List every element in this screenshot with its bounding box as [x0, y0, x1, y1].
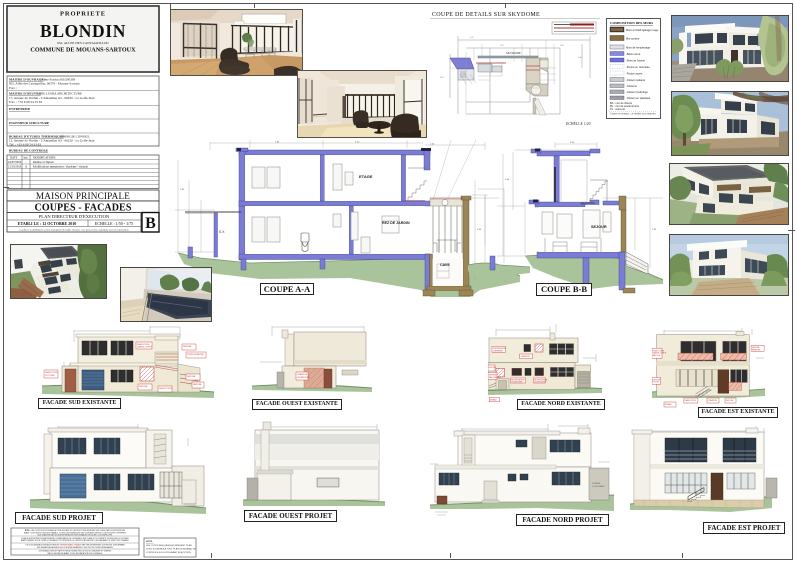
svg-text:ETAGE: ETAGE: [359, 174, 373, 179]
svg-text:-Cloison hydrofuge: -Cloison hydrofuge: [626, 90, 648, 94]
svg-text:DEPOSE: DEPOSE: [488, 367, 496, 369]
svg-text:PORTE FENETRE: PORTE FENETRE: [187, 354, 204, 356]
svg-text:DEMOLITION: DEMOLITION: [45, 372, 58, 374]
svg-text:DEMOLITION: DEMOLITION: [685, 400, 697, 402]
svg-text:B: B: [145, 215, 156, 232]
svg-text:-Poutre noyée: -Poutre noyée: [626, 72, 643, 76]
svg-text:-Poutre en retombée: -Poutre en retombée: [626, 65, 650, 69]
svg-text:CHEMINEE: CHEMINEE: [493, 350, 503, 352]
svg-text:DEPOSE: DEPOSE: [193, 384, 202, 386]
svg-text:MACONNERIE: MACONNERIE: [489, 376, 502, 379]
svg-text:PORTE: PORTE: [653, 382, 660, 384]
svg-text:CAVE: CAVE: [440, 263, 450, 267]
svg-text:MEZZANINE: MEZZANINE: [581, 202, 595, 205]
svg-text:Cotes et niveaux : à vérifier: Cotes et niveaux : à vérifier sur chanti…: [610, 112, 656, 116]
svg-text:BUREAU DE CONTROLE: BUREAU DE CONTROLE: [9, 149, 49, 153]
svg-text:BALCON: BALCON: [653, 354, 661, 357]
svg-text:ENTREPRISE: ENTREPRISE: [9, 107, 31, 111]
svg-text:-Cloison isolante: -Cloison isolante: [626, 78, 646, 82]
svg-text:GARDE CORPS: GARDE CORPS: [137, 346, 152, 349]
svg-text:DEMOLITION: DEMOLITION: [159, 388, 172, 390]
svg-text:S.X: S.X: [219, 230, 225, 234]
svg-text:CLOTURE: CLOTURE: [45, 375, 55, 377]
svg-text:3.40: 3.40: [570, 142, 575, 144]
svg-text:ETABLI LE : 12 OCTOBRE 2010: ETABLI LE : 12 OCTOBRE 2010: [18, 221, 76, 226]
svg-text:CONTROLE SOLLICITE AVANT EXECU: CONTROLE SOLLICITE AVANT EXECUTION: [146, 551, 191, 554]
svg-text:0.30: 0.30: [578, 57, 582, 59]
svg-text:Port. : +33 6 09 54 33 63: Port. : +33 6 09 54 33 63: [9, 100, 42, 104]
svg-text:CREATION: CREATION: [521, 355, 531, 358]
svg-text:-Cloisons: -Cloisons: [626, 84, 638, 88]
svg-text:Murs de remplissage: Murs de remplissage: [626, 46, 651, 50]
svg-text:DEPOSE: DEPOSE: [187, 376, 196, 378]
svg-text:16/07/2010: 16/07/2010: [8, 160, 22, 164]
svg-text:2.64: 2.64: [275, 142, 280, 144]
svg-text::: :: [29, 107, 30, 111]
svg-text:PLAN DIRECTEUR D'EXECUTION: PLAN DIRECTEUR D'EXECUTION: [39, 214, 110, 219]
svg-text:NIVEAU: NIVEAU: [665, 403, 672, 406]
svg-text:REZ DE JARDIN: REZ DE JARDIN: [382, 221, 410, 225]
svg-text:Modifications menuiseries / sk: Modifications menuiseries / skydome / vé…: [33, 165, 89, 169]
svg-text:1.40: 1.40: [430, 144, 435, 146]
svg-text:ECHELLE 1/20: ECHELLE 1/20: [566, 122, 591, 126]
svg-text:LES COTES INDIQUEES AU PRESENT: LES COTES INDIQUEES AU PRESENT PLAN: [146, 544, 192, 547]
svg-text:Port. :: Port. :: [9, 86, 17, 90]
svg-text:12/10/2010: 12/10/2010: [8, 165, 22, 169]
svg-text:AVANT REMISE DE SON OFFRE ET S: AVANT REMISE DE SON OFFRE ET SIGNALER TO…: [21, 539, 130, 542]
svg-text:Mur porteur: Mur porteur: [626, 37, 640, 41]
svg-text:Ce plan et sa distribution res: Ce plan et sa distribution restent la pr…: [19, 229, 129, 232]
svg-text::: :: [45, 149, 46, 153]
svg-text:BLONDIN: BLONDIN: [40, 21, 126, 41]
svg-text:SEJOUR: SEJOUR: [591, 225, 607, 229]
svg-text:0.40: 0.40: [560, 45, 564, 47]
svg-text:-: -: [26, 160, 27, 164]
svg-text:DATE: DATE: [10, 155, 18, 159]
svg-text:OUVERTURE: OUVERTURE: [534, 382, 546, 384]
svg-text:-Béton armé: -Béton armé: [626, 52, 641, 56]
svg-text:0.15: 0.15: [470, 37, 474, 39]
svg-text:PORTAIL: PORTAIL: [592, 482, 601, 485]
svg-text:2.45: 2.45: [652, 229, 657, 231]
svg-text:CREATION: CREATION: [708, 399, 718, 402]
svg-text:Remise à l'Option: Remise à l'Option: [33, 160, 54, 164]
svg-text:2.60: 2.60: [180, 189, 185, 191]
svg-text:COMPOSITION DES MURS: COMPOSITION DES MURS: [610, 21, 653, 25]
svg-text:MODIFICATIONS: MODIFICATIONS: [33, 155, 56, 159]
svg-text:SONT SOUMISES A TOUT PLAN DE B: SONT SOUMISES A TOUT PLAN DE BUREAU DE: [146, 547, 196, 550]
svg-text:NIVEAU: NIVEAU: [490, 398, 497, 401]
svg-text:MAISON PRINCIPALE: MAISON PRINCIPALE: [36, 191, 130, 201]
svg-text:0.25: 0.25: [440, 77, 444, 79]
svg-text:SKYDOME: SKYDOME: [506, 51, 521, 55]
svg-text:-Murs de l'avenir: -Murs de l'avenir: [626, 59, 645, 63]
svg-text:OUVERTURE: OUVERTURE: [511, 382, 523, 384]
svg-text:-Cloison en plastique: -Cloison en plastique: [626, 96, 651, 100]
svg-text:2.65: 2.65: [505, 179, 510, 181]
svg-text:DEPOSE: DEPOSE: [139, 386, 148, 388]
svg-text:Ind.: Ind.: [24, 155, 29, 159]
svg-text:NOTE :: NOTE :: [146, 541, 154, 543]
svg-text:CREATION: CREATION: [297, 373, 308, 376]
svg-text:SUR CHANTIER PAR LES ENTREPREN: SUR CHANTIER PAR LES ENTREPRENEURS RESPO…: [37, 533, 113, 536]
svg-text:DEPOSE: DEPOSE: [726, 400, 734, 402]
svg-text:PROPRIETE: PROPRIETE: [60, 11, 106, 18]
svg-text:DES DEMARCHES AUPRES DES CONCE: DES DEMARCHES AUPRES DES CONCESSIONNAIRE…: [37, 546, 114, 549]
svg-text:1.35: 1.35: [500, 45, 504, 47]
svg-text:PAR LE GEOMETRE AVANT TOUTE IM: PAR LE GEOMETRE AVANT TOUTE IMPLANTATION…: [48, 552, 104, 555]
svg-text:OUVERTURE: OUVERTURE: [297, 377, 310, 379]
svg-text::: :: [47, 121, 48, 125]
svg-text:Murs à réhab./garage rouge: Murs à réhab./garage rouge: [626, 28, 659, 32]
svg-text:3.10: 3.10: [355, 142, 360, 144]
svg-text:PL : volet ext.: PL : volet ext.: [610, 107, 626, 111]
svg-text:COUPES - FACADES: COUPES - FACADES: [35, 203, 132, 214]
svg-text:COULISSANT: COULISSANT: [592, 485, 606, 488]
svg-text:ECHELLE : 1/50 - 1/75: ECHELLE : 1/50 - 1/75: [95, 221, 133, 226]
svg-text:INGENIEUR STRUCTURE: INGENIEUR STRUCTURE: [9, 121, 50, 125]
svg-text:Tél. : +33 6 09 54 33 63: Tél. : +33 6 09 54 33 63: [9, 142, 41, 146]
svg-text:FENETRE: FENETRE: [752, 349, 761, 351]
svg-text:DEPOSE: DEPOSE: [183, 346, 192, 348]
svg-text:COMMUNE DE MOUANS-SARTOUX: COMMUNE DE MOUANS-SARTOUX: [30, 47, 136, 54]
